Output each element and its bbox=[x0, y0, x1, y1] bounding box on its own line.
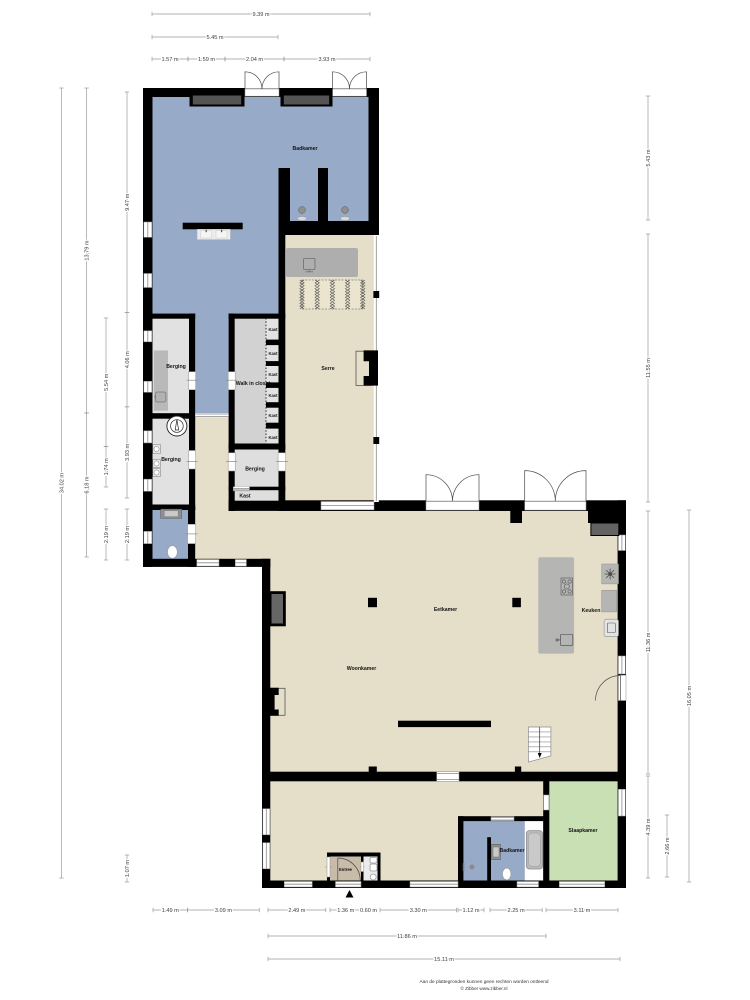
svg-text:3.93 m: 3.93 m bbox=[125, 444, 131, 461]
svg-text:6.18 m: 6.18 m bbox=[85, 476, 91, 493]
svg-text:11.36 m: 11.36 m bbox=[646, 632, 652, 652]
svg-text:© Zibber www.zibber.nl: © Zibber www.zibber.nl bbox=[460, 985, 507, 991]
svg-text:Berging: Berging bbox=[245, 467, 265, 473]
svg-text:Woonkamer: Woonkamer bbox=[347, 666, 377, 672]
svg-text:Slaapkamer: Slaapkamer bbox=[568, 828, 597, 834]
svg-text:1.36 m: 1.36 m bbox=[337, 908, 354, 914]
svg-text:1.57 m: 1.57 m bbox=[161, 57, 178, 63]
svg-text:Aan de plattegronden kunnen ge: Aan de plattegronden kunnen geen rechten… bbox=[419, 979, 548, 985]
svg-text:Kast: Kast bbox=[268, 372, 278, 377]
svg-text:4.06 m: 4.06 m bbox=[125, 351, 131, 368]
svg-text:3.11 m: 3.11 m bbox=[574, 908, 591, 914]
svg-text:2.19 m: 2.19 m bbox=[104, 526, 110, 543]
svg-text:Walk in closet: Walk in closet bbox=[236, 381, 271, 387]
svg-text:16.05 m: 16.05 m bbox=[687, 686, 693, 707]
svg-text:5.45 m: 5.45 m bbox=[206, 35, 223, 41]
svg-text:3.93 m: 3.93 m bbox=[318, 57, 335, 63]
svg-text:Serre: Serre bbox=[321, 366, 334, 372]
svg-text:5.54 m: 5.54 m bbox=[104, 373, 110, 390]
svg-text:1.49 m: 1.49 m bbox=[162, 908, 179, 914]
svg-text:15.11 m: 15.11 m bbox=[434, 957, 454, 963]
svg-text:1.74 m: 1.74 m bbox=[104, 458, 110, 475]
svg-text:Kast: Kast bbox=[268, 327, 278, 332]
svg-text:Berging: Berging bbox=[166, 364, 186, 370]
svg-text:11.86 m: 11.86 m bbox=[397, 934, 417, 940]
svg-text:13.79 m: 13.79 m bbox=[85, 240, 91, 261]
svg-text:5.43 m: 5.43 m bbox=[646, 149, 652, 166]
svg-text:2.04 m: 2.04 m bbox=[246, 57, 263, 63]
svg-text:0.60 m: 0.60 m bbox=[360, 908, 377, 914]
svg-text:3.09 m: 3.09 m bbox=[215, 908, 232, 914]
svg-text:Kast: Kast bbox=[239, 493, 251, 499]
svg-text:9.47 m: 9.47 m bbox=[125, 193, 131, 210]
svg-text:4.39 m: 4.39 m bbox=[646, 818, 652, 835]
svg-text:Kast: Kast bbox=[268, 393, 278, 398]
svg-text:3.30 m: 3.30 m bbox=[410, 908, 427, 914]
svg-text:1.12 m: 1.12 m bbox=[462, 908, 479, 914]
svg-text:Eetkamer: Eetkamer bbox=[434, 607, 457, 613]
svg-text:Kast: Kast bbox=[268, 351, 278, 356]
svg-text:11.55 m: 11.55 m bbox=[646, 358, 652, 378]
svg-text:2.66 m: 2.66 m bbox=[665, 837, 671, 854]
svg-text:Kast: Kast bbox=[268, 435, 278, 440]
svg-text:1.07 m: 1.07 m bbox=[125, 860, 131, 877]
svg-text:1.59 m: 1.59 m bbox=[198, 57, 215, 63]
svg-text:Keuken: Keuken bbox=[582, 608, 601, 614]
svg-text:34.02 m: 34.02 m bbox=[60, 473, 66, 494]
svg-text:Berging: Berging bbox=[161, 457, 181, 463]
svg-text:Badkamer: Badkamer bbox=[292, 146, 317, 152]
svg-text:Kast: Kast bbox=[268, 413, 278, 418]
svg-text:9.39 m: 9.39 m bbox=[252, 12, 269, 18]
svg-text:2.49 m: 2.49 m bbox=[288, 908, 305, 914]
svg-text:2.19 m: 2.19 m bbox=[125, 526, 131, 543]
svg-text:Entree: Entree bbox=[339, 867, 353, 872]
svg-text:Badkamer: Badkamer bbox=[499, 848, 524, 854]
svg-text:2.25 m: 2.25 m bbox=[508, 908, 525, 914]
